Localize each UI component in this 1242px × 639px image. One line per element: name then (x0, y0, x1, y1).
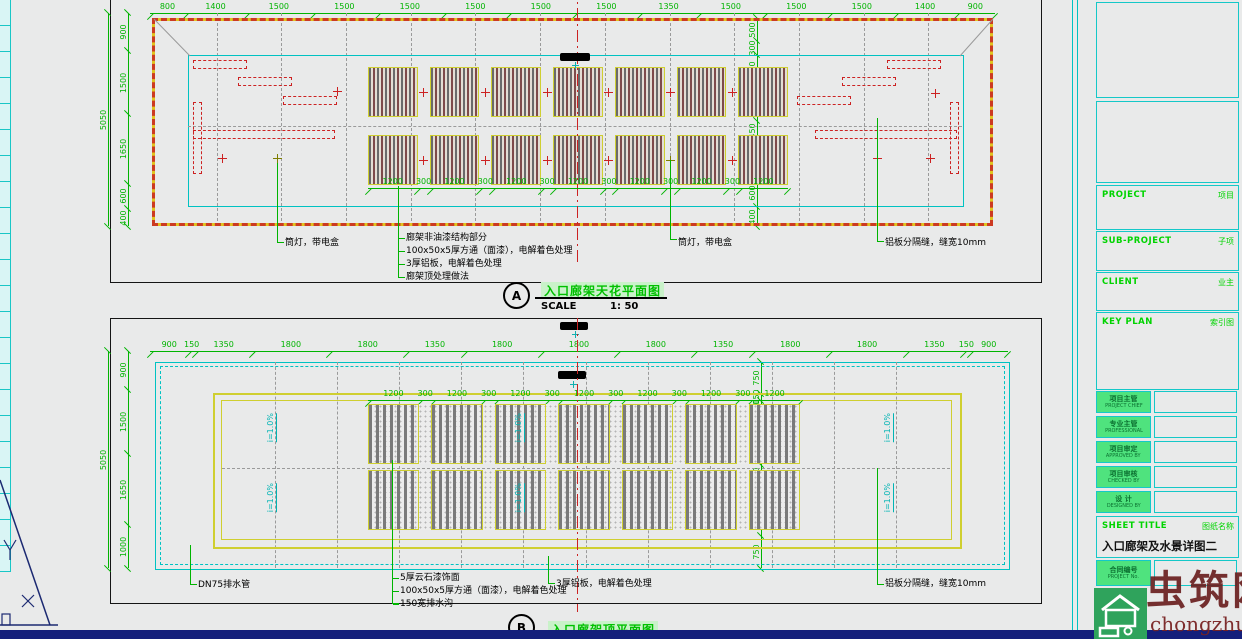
dimension-segment: 300 (479, 180, 491, 188)
louvre-panel (677, 67, 727, 117)
louvre-panel (430, 67, 480, 117)
leader-line (877, 118, 878, 242)
leader-line (670, 160, 671, 240)
panel-b-dim-row-top: 9001501350180018001350180018001800135018… (150, 342, 1008, 352)
downlight-symbol (333, 87, 342, 96)
titleblock-row-label-en: PROJECT CHIEF (1105, 403, 1143, 408)
annotation-line: 100x50x5厚方通（面漆），电解着色处理 (400, 586, 567, 596)
dimension-segment: 1200 (615, 180, 664, 188)
downlight-symbol (543, 88, 552, 97)
titleblock-box-logo-area (1096, 2, 1239, 98)
beam-dashes (283, 96, 337, 105)
dimension-segment: 1200 (432, 392, 483, 400)
titleblock-row-label-cn: 项目审核 (1110, 470, 1138, 478)
dimension-segment: 300 (726, 180, 738, 188)
sheet-name: 入口廊架及水景详图二 (1102, 538, 1217, 554)
dimension-segment: 1800 (829, 342, 906, 351)
dimension-value: 1800 (780, 341, 800, 349)
panel-b-centerline (577, 318, 578, 612)
panel-b-louvre-row-2 (368, 470, 800, 530)
dimension-segment: 1200 (559, 392, 610, 400)
dimension-value: 1800 (358, 341, 378, 349)
dimension-value: 900 (162, 341, 177, 349)
panel-b-dim-row-inner: 1200300120030012003001200300120030012003… (368, 392, 800, 401)
dimension-value: 1800 (646, 341, 666, 349)
leader-line (277, 163, 278, 243)
titleblock-box-consultant (1096, 101, 1239, 183)
louvre-gap (483, 404, 495, 464)
louvre-panel (368, 470, 419, 530)
watermark-brand: 虫筑网 (1146, 568, 1242, 614)
beam-dashes (797, 96, 851, 105)
slope-label: i=1.0% (514, 413, 525, 442)
client-label: CLIENT (1102, 277, 1139, 287)
annotation-drain-pipe: DN75排水管 (198, 580, 250, 590)
titleblock-row-label-cn: 项目主管 (1110, 395, 1138, 403)
dimension-segment: 1800 (617, 342, 694, 351)
sheet-frame-line (1077, 0, 1078, 630)
louvre-panel (491, 67, 541, 117)
louvre-panel (749, 404, 800, 464)
slope-label: i=1.0% (266, 483, 277, 512)
dimension-value: 300 (418, 390, 433, 398)
panel-b-mid-dashed-line (222, 468, 950, 469)
dimension-segment: 1200 (749, 392, 800, 400)
dimension-segment: 1350 (694, 342, 752, 351)
louvre-gap (603, 67, 615, 117)
annotation-downlight-left: 筒灯，带电盒 (285, 238, 339, 248)
dimension-segment: 300 (419, 392, 432, 400)
titleblock-row-label: 专业主管PROFESSIONAL (1096, 416, 1151, 438)
louvre-gap (673, 470, 685, 530)
downlight-symbol (931, 89, 940, 98)
downlight-symbol (419, 88, 428, 97)
dimension-segment: 1000 (124, 525, 128, 568)
dimension-value: 1500 (119, 412, 128, 432)
panel-a-dim-row-inner: 1200300120030012003001200300120030012003… (368, 180, 788, 189)
louvre-gap (726, 67, 738, 117)
dimension-segment: 1200 (430, 180, 479, 188)
leader-line (392, 460, 393, 604)
titleblock-row-label-en: APPROVED BY (1106, 453, 1141, 458)
dimension-segment: 1650 (124, 454, 128, 525)
louvre-panel (749, 470, 800, 530)
chongzhu-logo (1094, 588, 1147, 639)
dimension-segment: 1200 (686, 392, 737, 400)
titleblock-row: 专业主管PROFESSIONAL (1096, 416, 1237, 438)
louvre-panel (558, 470, 609, 530)
panel-a-dim-col-total: 5050 (104, 13, 109, 226)
survey-mark (572, 62, 579, 69)
beam-dashes (842, 77, 896, 86)
annotation-line: 廊架顶处理做法 (406, 272, 573, 282)
dimension-segment: 300 (603, 180, 615, 188)
dimension-segment: 900 (124, 351, 128, 390)
dimension-value: 1350 (213, 341, 233, 349)
louvre-panel (431, 470, 482, 530)
client-label-cn: 业主 (1218, 277, 1234, 288)
leader-line (877, 468, 878, 585)
panel-a-mid-dashed-line (188, 126, 962, 127)
dimension-value: 300 (735, 390, 750, 398)
dimension-segment: 1200 (622, 392, 673, 400)
dimension-segment: 1200 (677, 180, 726, 188)
dimension-value: 300 (481, 390, 496, 398)
dimension-value: 1200 (506, 178, 526, 186)
dimension-value: 300 (545, 390, 560, 398)
subproject-label: SUB-PROJECT (1102, 236, 1172, 246)
dimension-value: 1800 (281, 341, 301, 349)
slope-label: i=1.0% (883, 413, 894, 442)
louvre-gap (665, 67, 677, 117)
downlight-symbol (926, 154, 935, 163)
watermark-url: chongzhu.cn (1150, 612, 1242, 636)
dimension-value: 1650 (119, 479, 128, 499)
dimension-value: 1800 (569, 341, 589, 349)
dimension-segment: 300 (673, 392, 686, 400)
downlight-symbol (728, 88, 737, 97)
scale-label: SCALE (541, 301, 576, 312)
beam-dashes-long (815, 130, 957, 139)
titleblock-row-label: 项目主管PROJECT CHIEF (1096, 391, 1151, 413)
annotation-line: 5厚云石漆饰面 (400, 573, 567, 583)
dimension-value: 1200 (637, 390, 657, 398)
titleblock-project: PROJECT 项目 (1096, 185, 1239, 230)
titleblock-sheettitle: SHEET TITLE 图纸名称 入口廊架及水景详图二 (1096, 516, 1239, 558)
dimension-value: 1200 (383, 390, 403, 398)
dimension-segment: 1200 (368, 180, 417, 188)
louvre-panel (738, 67, 788, 117)
dimension-segment: 1200 (739, 180, 788, 188)
beam-dashes (887, 60, 941, 69)
dimension-segment: 1800 (464, 342, 541, 351)
downlight-symbol (481, 156, 490, 165)
sheettitle-label-cn: 图纸名称 (1202, 521, 1234, 532)
dimension-value: 1200 (447, 390, 467, 398)
dimension-value: 300 (672, 390, 687, 398)
leader-line (190, 545, 191, 585)
dimension-segment: 1200 (495, 392, 546, 400)
panel-b-louvre-row-1 (368, 404, 800, 464)
louvre-panel (368, 67, 418, 117)
louvre-panel (622, 404, 673, 464)
dimension-segment: 1800 (252, 342, 329, 351)
dimension-value: 1200 (568, 178, 588, 186)
sheet-frame-line (1072, 0, 1073, 630)
louvre-gap (673, 404, 685, 464)
dimension-segment: 300 (736, 392, 749, 400)
slope-label: i=1.0% (266, 413, 277, 442)
dimension-value: 1000 (119, 536, 128, 556)
titleblock-keyplan: KEY PLAN 索引图 (1096, 312, 1239, 390)
louvre-gap (419, 404, 431, 464)
dimension-segment: 1200 (492, 180, 541, 188)
titleblock-signature-rows: 项目主管PROJECT CHIEF专业主管PROFESSIONAL项目审定APP… (1096, 391, 1237, 516)
dimension-value: 1200 (383, 178, 403, 186)
dimension-segment: 900 (150, 342, 188, 351)
titleblock-row-label: 设 计DESIGNED BY (1096, 491, 1151, 513)
louvre-gap (610, 404, 622, 464)
louvre-panel (685, 404, 736, 464)
louvre-panel (431, 404, 482, 464)
dimension-value: 1200 (444, 178, 464, 186)
downlight-symbol (666, 88, 675, 97)
dimension-segment: 1500 (124, 390, 128, 454)
project-label: PROJECT (1102, 190, 1147, 200)
level-marker (560, 53, 590, 61)
annotation-materials-b: 5厚云石漆饰面100x50x5厚方通（面漆），电解着色处理150宽排水沟 (400, 573, 567, 612)
titleblock-row: 项目主管PROJECT CHIEF (1096, 391, 1237, 413)
dimension-value: 1200 (630, 178, 650, 186)
dimension-value: 1200 (510, 390, 530, 398)
louvre-gap (419, 470, 431, 530)
dimension-segment: 300 (541, 180, 553, 188)
sheettitle-label: SHEET TITLE (1102, 521, 1167, 531)
dimension-segment: 1350 (195, 342, 253, 351)
slope-label: i=1.0% (514, 483, 525, 512)
louvre-panel (368, 404, 419, 464)
dimension-value: 1800 (857, 341, 877, 349)
annotation-joint-b: 铝板分隔缝，缝宽10mm (885, 579, 986, 589)
louvre-panel (615, 67, 665, 117)
dimension-segment: 1800 (752, 342, 829, 351)
downlight-symbol (543, 156, 552, 165)
louvre-panel (685, 470, 736, 530)
titleblock-row-label-en: DESIGNED BY (1107, 503, 1141, 508)
titleblock-row-value-cell (1154, 441, 1237, 463)
downlight-symbol (419, 156, 428, 165)
annotation-joint-a: 铝板分隔缝，缝宽10mm (885, 238, 986, 248)
projectno-label: 合同编号 PROJECT No. (1096, 560, 1151, 586)
louvre-gap (737, 470, 749, 530)
annotation-line: 100x50x5厚方通（面漆），电解着色处理 (406, 246, 573, 256)
titleblock-row-value-cell (1154, 416, 1237, 438)
annotation-line: 廊架非油漆结构部分 (406, 233, 573, 243)
dimension-segment: 1200 (553, 180, 602, 188)
louvre-gap (546, 404, 558, 464)
downlight-symbol (218, 154, 227, 163)
project-label-cn: 项目 (1218, 190, 1234, 201)
downlight-symbol (273, 154, 282, 163)
detail-ref-a: A (503, 282, 530, 309)
titleblock-row: 设 计DESIGNED BY (1096, 491, 1237, 513)
dimension-value: 1200 (691, 178, 711, 186)
panel-b-dim-col-total: 5050 (104, 351, 109, 568)
beam-dashes-long (193, 130, 335, 139)
dimension-segment: 1200 (368, 392, 419, 400)
dimension-segment: 900 (970, 342, 1008, 351)
dimension-value: 900 (119, 363, 128, 378)
dimension-value: 1200 (753, 178, 773, 186)
titleblock-row-label-cn: 专业主管 (1110, 420, 1138, 428)
annotation-materials-a: 廊架非油漆结构部分100x50x5厚方通（面漆），电解着色处理3厚铝板，电解着色… (406, 233, 573, 285)
louvre-panel (558, 404, 609, 464)
downlight-symbol (604, 156, 613, 165)
titleblock-row-label-cn: 项目审定 (1110, 445, 1138, 453)
slope-label: i=1.0% (883, 483, 894, 512)
downlight-symbol (604, 88, 613, 97)
downlight-symbol (481, 88, 490, 97)
titleblock-client: CLIENT 业主 (1096, 272, 1239, 311)
dimension-segment: 1800 (541, 342, 618, 351)
panel-a-louvre-row-1 (368, 67, 788, 117)
beam-dashes (193, 60, 247, 69)
annotation-downlight-mid: 筒灯，带电盒 (678, 238, 732, 248)
dimension-value: 1800 (492, 341, 512, 349)
louvre-panel (622, 470, 673, 530)
panel-a-centerline (577, 0, 578, 262)
dimension-segment: 300 (482, 392, 495, 400)
keyplan-label-cn: 索引图 (1210, 317, 1234, 328)
dimension-segment: 1350 (406, 342, 464, 351)
louvre-gap (541, 67, 553, 117)
dimension-segment: 300 (609, 392, 622, 400)
keyplan-label: KEY PLAN (1102, 317, 1153, 327)
titleblock-row-value-cell (1154, 391, 1237, 413)
beam-dashes (238, 77, 292, 86)
dimension-value: 1350 (713, 341, 733, 349)
louvre-gap (546, 470, 558, 530)
dimension-value: 1200 (701, 390, 721, 398)
dimension-value: 900 (981, 341, 996, 349)
louvre-gap (483, 470, 495, 530)
annotation-alum-panel: 3厚铝板，电解着色处理 (556, 579, 652, 589)
dimension-segment: 300 (546, 392, 559, 400)
downlight-symbol (728, 156, 737, 165)
louvre-gap (737, 404, 749, 464)
subproject-label-cn: 子项 (1218, 236, 1234, 247)
titleblock-row: 项目审核CHECKED BY (1096, 466, 1237, 488)
dimension-value: 1350 (425, 341, 445, 349)
title-underline (535, 297, 667, 299)
louvre-gap (418, 67, 430, 117)
scale-value: 1: 50 (610, 301, 638, 312)
titleblock-row-label-en: PROFESSIONAL (1105, 428, 1143, 433)
dimension-value: 300 (608, 390, 623, 398)
dimension-value: 1200 (764, 390, 784, 398)
panel-b-dim-col-left: 900150016501000 (124, 351, 129, 568)
dimension-segment: 1350 (906, 342, 964, 351)
dimension-segment: 1800 (329, 342, 406, 351)
titleblock-row: 项目审定APPROVED BY (1096, 441, 1237, 463)
titleblock-row-value-cell (1154, 491, 1237, 513)
titleblock-row-label-cn: 设 计 (1115, 495, 1131, 503)
titleblock-row-label: 项目审核CHECKED BY (1096, 466, 1151, 488)
louvre-gap (610, 470, 622, 530)
dimension-segment: 300 (417, 180, 429, 188)
dimension-value: 1350 (924, 341, 944, 349)
cad-canvas: 8001400150015001500150015001500135015001… (0, 0, 1242, 639)
annotation-line: 3厚铝板，电解着色处理 (406, 259, 573, 269)
titleblock-row-label-en: CHECKED BY (1108, 478, 1140, 483)
titleblock-row-label: 项目审定APPROVED BY (1096, 441, 1151, 463)
adjacent-drawing-lines (0, 470, 70, 630)
annotation-line: 150宽排水沟 (400, 599, 567, 609)
titleblock-row-value-cell (1154, 466, 1237, 488)
status-bar (0, 630, 1242, 639)
titleblock-subproject: SUB-PROJECT 子项 (1096, 231, 1239, 271)
louvre-gap (479, 67, 491, 117)
level-marker (560, 322, 588, 330)
